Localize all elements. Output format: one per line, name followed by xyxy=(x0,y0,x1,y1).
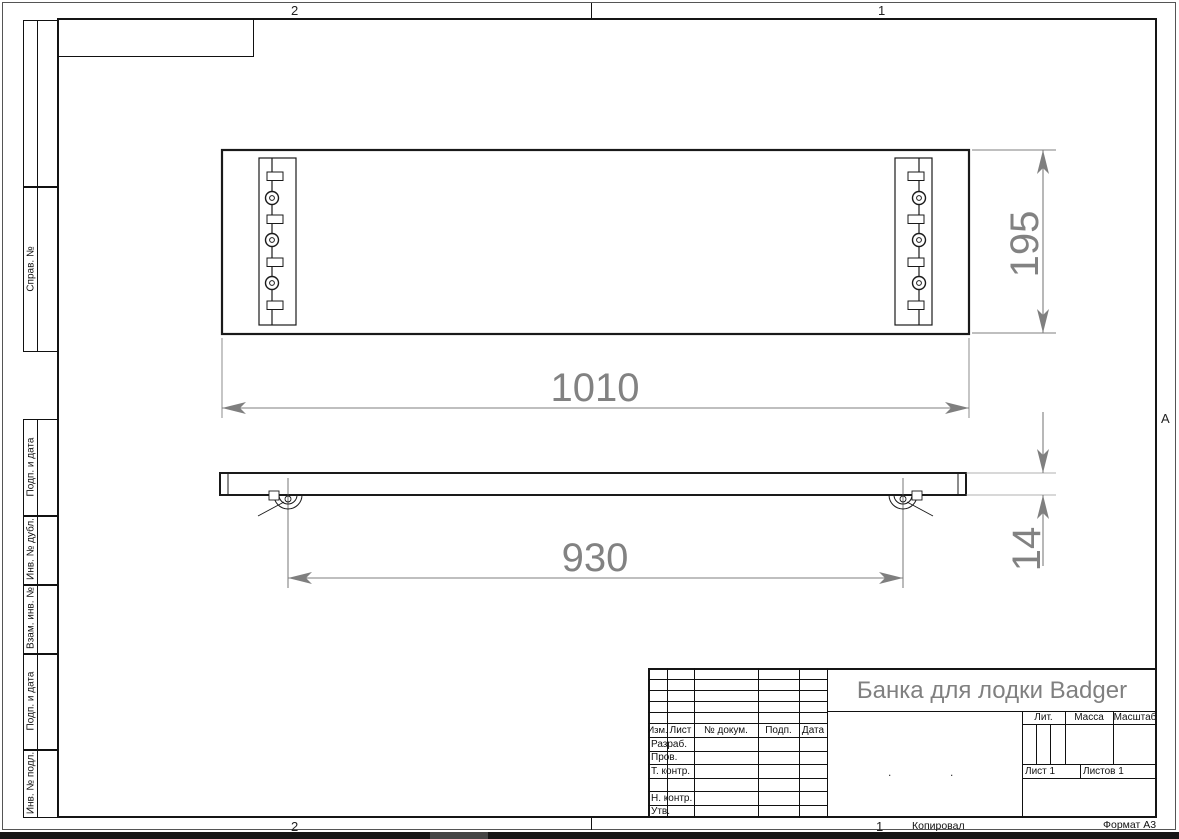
bracket-tab xyxy=(267,172,283,181)
row-label-nkontr: Н. контр. xyxy=(648,791,694,805)
dim-14: 14 xyxy=(1005,412,1049,571)
screw-icon xyxy=(266,192,279,205)
screw-icon xyxy=(913,234,926,247)
dim-1010: 1010 xyxy=(222,338,969,418)
bracket-tab xyxy=(908,258,924,267)
grid-line xyxy=(648,679,827,680)
screw-icon xyxy=(913,192,926,205)
dot-mark: . xyxy=(950,765,953,779)
grid-line xyxy=(648,690,827,691)
document-title: Банка для лодки Badger xyxy=(857,677,1127,705)
dim-width-value: 1010 xyxy=(551,366,640,410)
row-label-prov: Пров. xyxy=(648,751,694,764)
dim-depth-value: 195 xyxy=(1003,211,1047,278)
col-header-dokum: № докум. xyxy=(694,723,758,737)
dim-930: 930 xyxy=(288,536,903,584)
mass-label: Масса xyxy=(1065,711,1113,724)
screw-icon xyxy=(266,277,279,290)
sheets-total: Листов 1 xyxy=(1080,764,1157,778)
bracket-tab xyxy=(267,301,283,310)
col-header-data: Дата xyxy=(799,723,827,737)
bracket-tab xyxy=(267,258,283,267)
top-view-plank xyxy=(222,150,969,334)
grid-line xyxy=(1022,778,1157,779)
dim-195: 195 xyxy=(972,150,1056,333)
grid-line xyxy=(1050,724,1051,764)
window-bottom-bar xyxy=(0,832,1179,839)
col-header-izm: Изм. xyxy=(648,723,667,737)
grid-line xyxy=(648,701,827,702)
drawing-sheet: 2 1 2 1 А Копировал Формат А3 Справ. № П… xyxy=(0,0,1179,839)
col-header-podp: Подп. xyxy=(758,723,799,737)
bracket-tab xyxy=(267,215,283,224)
row-label-razrab: Разраб. xyxy=(648,737,694,751)
front-view-plank xyxy=(220,473,966,495)
grid-line xyxy=(1022,724,1157,725)
bracket-tab xyxy=(908,301,924,310)
dim-span-value: 930 xyxy=(562,536,629,580)
window-bottom-bar-highlight xyxy=(430,832,488,839)
screw-icon xyxy=(913,277,926,290)
grid-line xyxy=(648,712,827,713)
lit-label: Лит. xyxy=(1022,711,1065,724)
row-label-empty xyxy=(648,778,694,791)
screw-icon xyxy=(266,234,279,247)
sheet-number: Лист 1 xyxy=(1022,764,1080,778)
row-label-utv: Утв. xyxy=(648,805,694,818)
col-header-list: Лист xyxy=(667,723,694,737)
dot-mark: . xyxy=(888,765,891,779)
row-label-tkontr: Т. контр. xyxy=(648,764,694,778)
grid-line xyxy=(827,668,828,818)
bracket-tab xyxy=(908,215,924,224)
scale-label: Масштаб xyxy=(1113,711,1157,724)
bracket-tab xyxy=(908,172,924,181)
dim-thickness-value: 14 xyxy=(1005,527,1049,572)
grid-line xyxy=(1036,724,1037,764)
